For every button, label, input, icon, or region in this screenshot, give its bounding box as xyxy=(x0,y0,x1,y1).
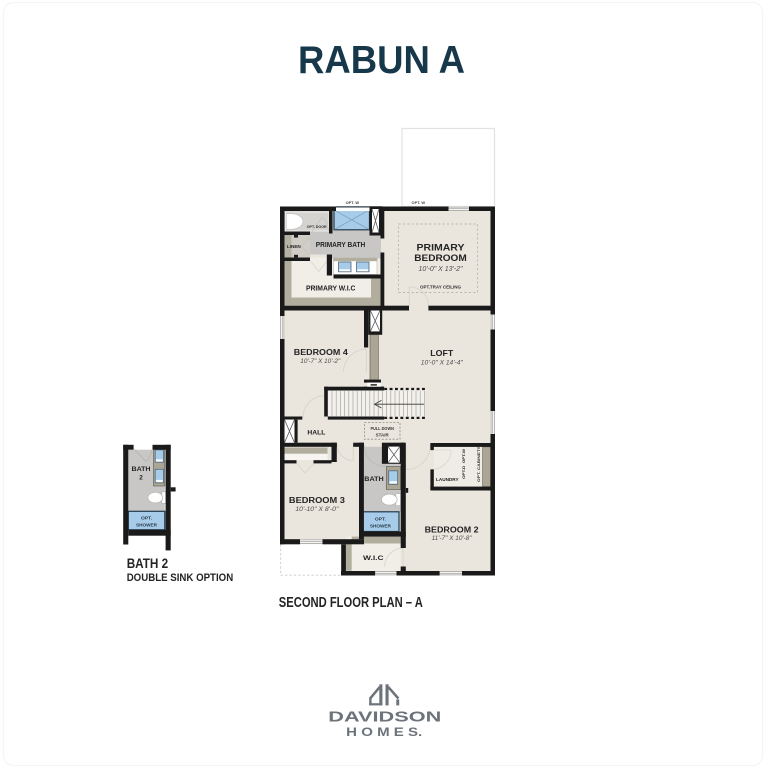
svg-text:BEDROOM: BEDROOM xyxy=(414,253,467,264)
svg-text:DAVIDSON: DAVIDSON xyxy=(328,709,441,726)
svg-text:10'-0" X 13'-2": 10'-0" X 13'-2" xyxy=(419,266,463,273)
svg-text:2: 2 xyxy=(139,475,143,482)
svg-text:PULL DOWN: PULL DOWN xyxy=(370,426,394,431)
svg-text:OPT. CABINETS: OPT. CABINETS xyxy=(476,446,481,482)
svg-text:LAUNDRY: LAUNDRY xyxy=(436,477,459,483)
svg-text:BATH: BATH xyxy=(132,466,151,473)
svg-text:10'-10" X 8'-0": 10'-10" X 8'-0" xyxy=(295,506,339,513)
svg-text:DOUBLE SINK OPTION: DOUBLE SINK OPTION xyxy=(127,572,234,584)
svg-text:BEDROOM 4: BEDROOM 4 xyxy=(294,348,349,357)
svg-text:BATH: BATH xyxy=(364,476,384,483)
svg-text:11'-7" X 10'-8": 11'-7" X 10'-8" xyxy=(432,536,473,542)
svg-text:SHOWER: SHOWER xyxy=(136,522,158,527)
svg-text:OPT.TRAY CEILING: OPT.TRAY CEILING xyxy=(420,284,461,289)
svg-text:W.I.C: W.I.C xyxy=(363,555,384,562)
svg-text:OPT.: OPT. xyxy=(375,517,386,522)
svg-text:BEDROOM 2: BEDROOM 2 xyxy=(425,525,480,534)
svg-text:PRIMARY W.I.C: PRIMARY W.I.C xyxy=(306,284,356,293)
svg-text:OPT. W: OPT. W xyxy=(346,201,360,205)
svg-text:10'-0" X 14'-4": 10'-0" X 14'-4" xyxy=(421,359,464,366)
svg-text:HALL: HALL xyxy=(307,431,325,437)
svg-text:STAIR: STAIR xyxy=(376,433,390,438)
svg-text:OPT. W: OPT. W xyxy=(412,201,426,205)
svg-text:SHOWER: SHOWER xyxy=(370,523,392,528)
svg-text:PRIMARY BATH: PRIMARY BATH xyxy=(316,240,366,249)
svg-text:BATH 2: BATH 2 xyxy=(127,556,169,571)
svg-text:SECOND FLOOR PLAN – A: SECOND FLOOR PLAN – A xyxy=(279,595,423,611)
svg-text:OPT.D OPT.W: OPT.D OPT.W xyxy=(461,449,466,479)
svg-text:LINEN: LINEN xyxy=(287,244,302,249)
svg-text:LOFT: LOFT xyxy=(430,348,454,358)
svg-text:H O M E S.: H O M E S. xyxy=(346,725,422,739)
svg-text:10'-7" X 10'-2": 10'-7" X 10'-2" xyxy=(300,358,341,365)
svg-text:RABUN A: RABUN A xyxy=(298,39,465,82)
svg-text:OPT.: OPT. xyxy=(141,515,152,520)
svg-text:PRIMARY: PRIMARY xyxy=(417,243,466,254)
svg-text:OPT. DOOR: OPT. DOOR xyxy=(307,225,327,229)
svg-text:BEDROOM 3: BEDROOM 3 xyxy=(289,496,346,505)
